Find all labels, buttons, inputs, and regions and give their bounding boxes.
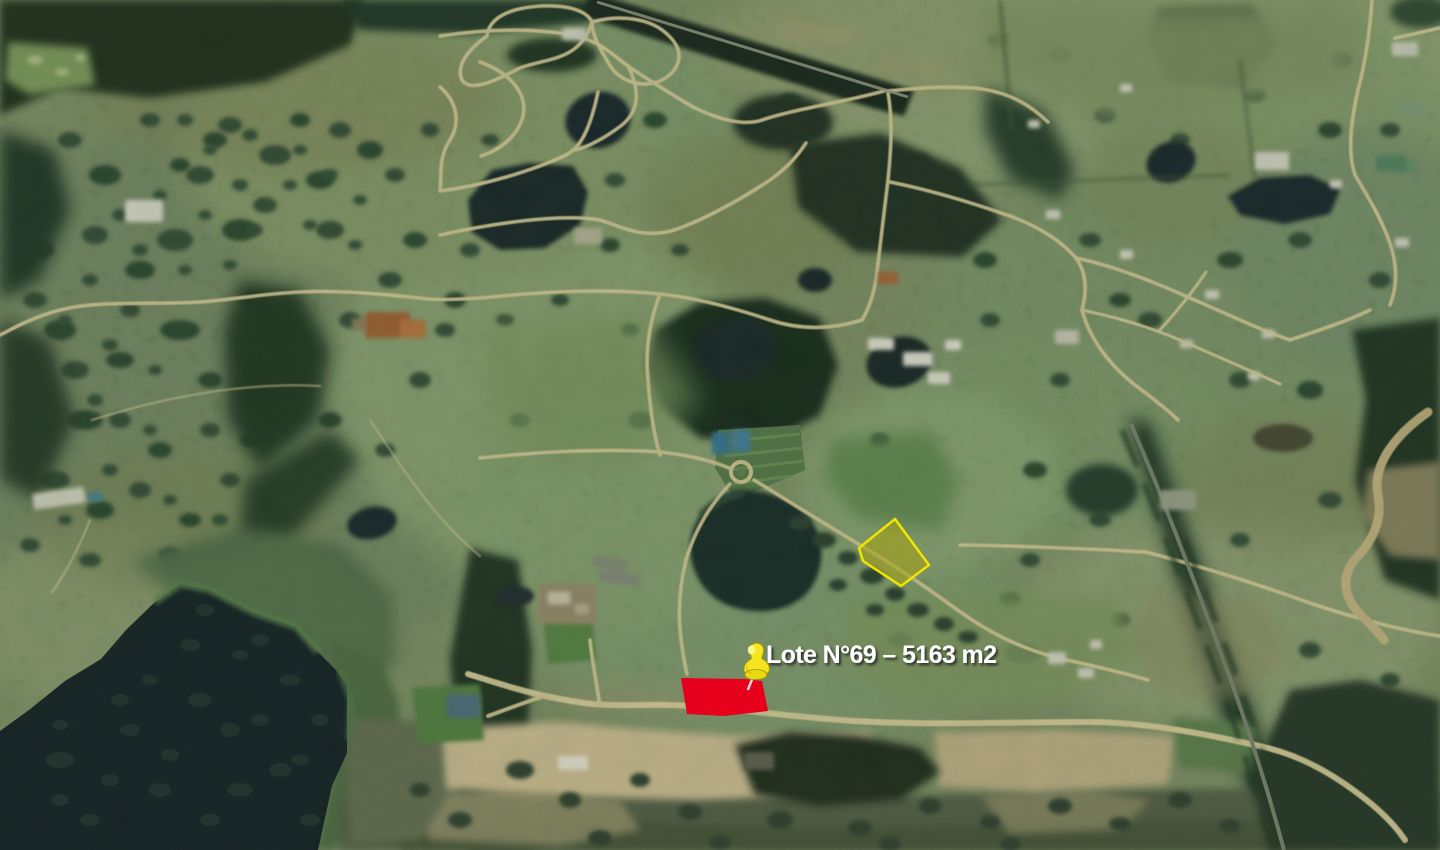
svg-text:Lote N°69 – 5163 m2: Lote N°69 – 5163 m2 — [766, 641, 997, 669]
